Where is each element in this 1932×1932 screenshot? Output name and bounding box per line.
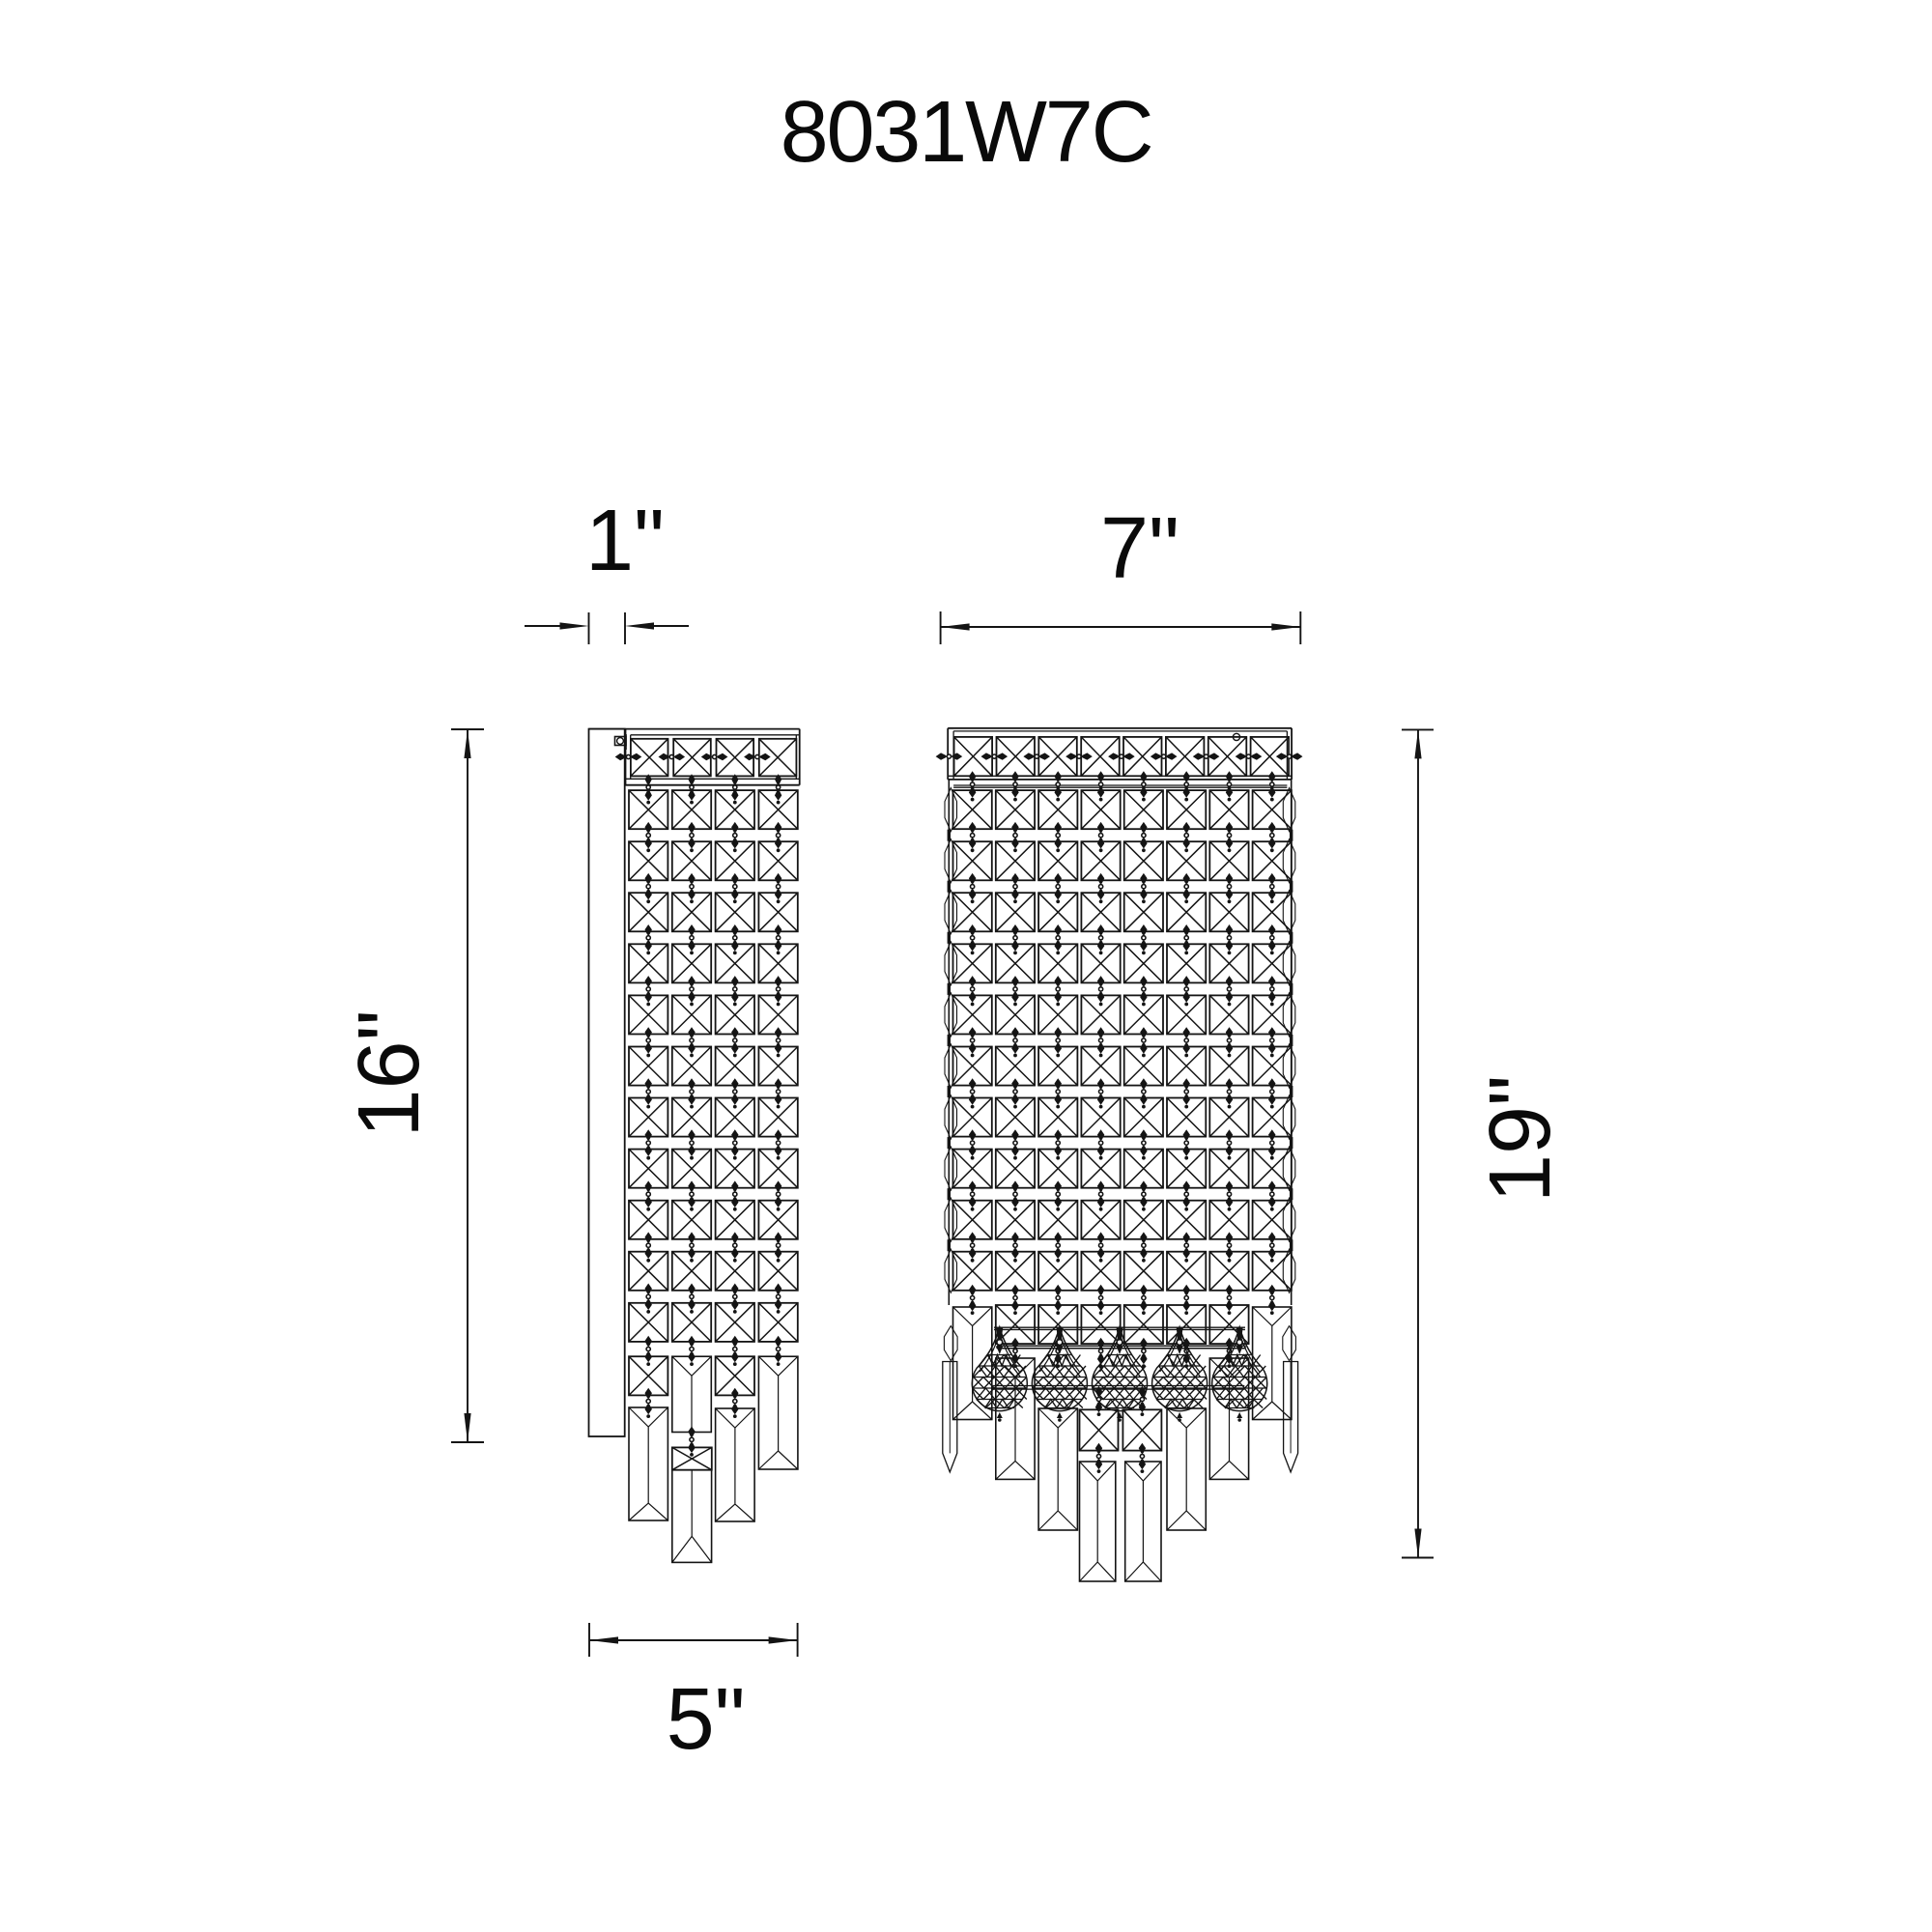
svg-text:1": 1" [585, 493, 665, 589]
svg-text:5": 5" [667, 1671, 746, 1768]
svg-text:19": 19" [1472, 1075, 1569, 1203]
svg-text:7": 7" [1100, 500, 1179, 597]
svg-text:16": 16" [341, 1009, 438, 1137]
svg-text:8031W7C: 8031W7C [781, 84, 1152, 181]
